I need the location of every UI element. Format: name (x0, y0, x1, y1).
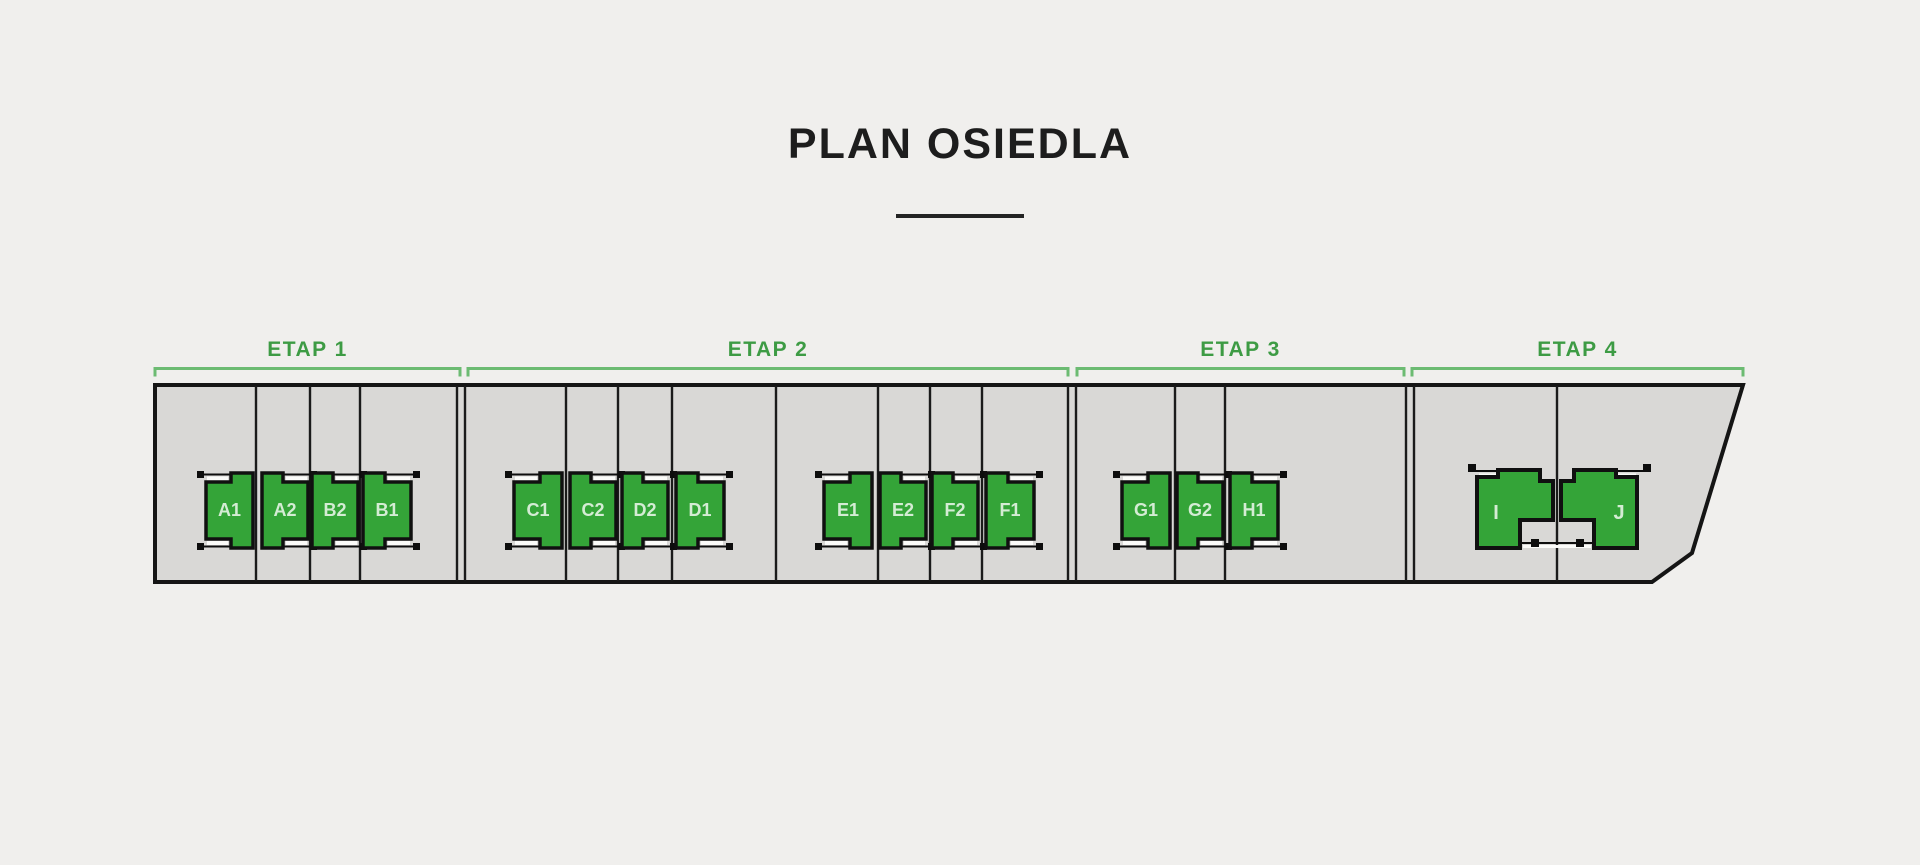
terrace-strip (1201, 477, 1222, 481)
terrace-strip (286, 477, 307, 481)
building-E1[interactable]: E1 (815, 471, 872, 550)
terrace-strip (336, 541, 357, 545)
etap-label: ETAP 3 (1200, 338, 1281, 361)
corner-marker (413, 543, 420, 550)
corner-marker (726, 543, 733, 550)
terrace-strip (1011, 477, 1033, 481)
building-B2[interactable]: B2 (312, 471, 367, 550)
etap-bracket (468, 369, 1068, 377)
terrace-strip (594, 541, 615, 545)
building-F1[interactable]: F1 (986, 471, 1043, 550)
etap-group-2: ETAP 2 (468, 338, 1068, 377)
building-label-D1: D1 (688, 500, 711, 520)
terrace-strip (286, 541, 307, 545)
building-label-B1: B1 (375, 500, 398, 520)
etap-label: ETAP 4 (1537, 338, 1618, 361)
etap-label: ETAP 2 (728, 338, 809, 361)
building-label-I: I (1493, 502, 1499, 524)
corner-marker (726, 471, 733, 478)
terrace-strip (388, 541, 410, 545)
terrace-strip (825, 477, 847, 481)
building-B1[interactable]: B1 (363, 471, 420, 550)
building-label-A1: A1 (218, 500, 241, 520)
building-label-C1: C1 (526, 500, 549, 520)
terrace-strip (904, 477, 925, 481)
building-label-F1: F1 (999, 500, 1020, 520)
corner-marker (1576, 539, 1584, 547)
terrace-strip (1011, 541, 1033, 545)
etap-label: ETAP 1 (267, 338, 348, 361)
building-A2[interactable]: A2 (262, 471, 317, 550)
corner-marker (505, 471, 512, 478)
building-label-E2: E2 (892, 500, 914, 520)
building-G2[interactable]: G2 (1177, 471, 1232, 550)
corner-marker (1113, 543, 1120, 550)
terrace-strip (956, 541, 977, 545)
corner-marker (197, 543, 204, 550)
building-label-D2: D2 (633, 500, 656, 520)
building-G1[interactable]: G1 (1113, 471, 1170, 550)
terrace-strip (1123, 541, 1145, 545)
corner-marker (1468, 464, 1476, 472)
terrace-strip (825, 541, 847, 545)
etap-group-4: ETAP 4 (1412, 338, 1743, 377)
terrace-strip (207, 477, 228, 481)
building-label-A2: A2 (273, 500, 296, 520)
corner-marker (1113, 471, 1120, 478)
corner-marker (1280, 471, 1287, 478)
building-C1[interactable]: C1 (505, 471, 562, 550)
building-label-E1: E1 (837, 500, 859, 520)
terrace-strip (904, 541, 925, 545)
building-F2[interactable]: F2 (932, 471, 987, 550)
etap-bracket (155, 369, 460, 377)
corner-marker (1531, 539, 1539, 547)
corner-marker (1280, 543, 1287, 550)
terrace-strip (1255, 477, 1277, 481)
building-D2[interactable]: D2 (622, 471, 677, 550)
estate-plan-svg: ETAP 1ETAP 2ETAP 3ETAP 4A1A2B2B1C1C2D2D1… (0, 0, 1920, 865)
terrace-strip (336, 477, 357, 481)
building-label-B2: B2 (323, 500, 346, 520)
building-H1[interactable]: H1 (1230, 471, 1287, 550)
terrace-strip (388, 477, 410, 481)
corner-marker (1036, 471, 1043, 478)
building-label-C2: C2 (581, 500, 604, 520)
terrace-strip (956, 477, 977, 481)
building-E2[interactable]: E2 (880, 471, 935, 550)
corner-marker (815, 543, 822, 550)
building-label-H1: H1 (1242, 500, 1265, 520)
terrace-strip (594, 477, 615, 481)
etap-bracket (1077, 369, 1404, 377)
etap-group-3: ETAP 3 (1077, 338, 1404, 377)
building-C2[interactable]: C2 (570, 471, 625, 550)
building-label-G2: G2 (1188, 500, 1212, 520)
corner-marker (1036, 543, 1043, 550)
etap-bracket (1412, 369, 1743, 377)
corner-marker (197, 471, 204, 478)
corner-marker (815, 471, 822, 478)
terrace-strip (515, 541, 537, 545)
terrace-strip (515, 477, 537, 481)
terrace-strip (701, 477, 723, 481)
building-A1[interactable]: A1 (197, 471, 253, 550)
terrace-strip (207, 541, 228, 545)
etap-group-1: ETAP 1 (155, 338, 460, 377)
estate-plan-page: PLAN OSIEDLA ETAP 1ETAP 2ETAP 3ETAP 4A1A… (0, 0, 1920, 865)
terrace-strip (1123, 477, 1145, 481)
building-label-F2: F2 (944, 500, 965, 520)
building-label-G1: G1 (1134, 500, 1158, 520)
terrace-strip (1255, 541, 1277, 545)
corner-marker (505, 543, 512, 550)
terrace-strip (646, 541, 667, 545)
terrace-strip (1201, 541, 1222, 545)
corner-marker (1643, 464, 1651, 472)
terrace-strip (701, 541, 723, 545)
terrace-strip (646, 477, 667, 481)
building-D1[interactable]: D1 (676, 471, 733, 550)
corner-marker (413, 471, 420, 478)
building-label-J: J (1613, 502, 1624, 524)
